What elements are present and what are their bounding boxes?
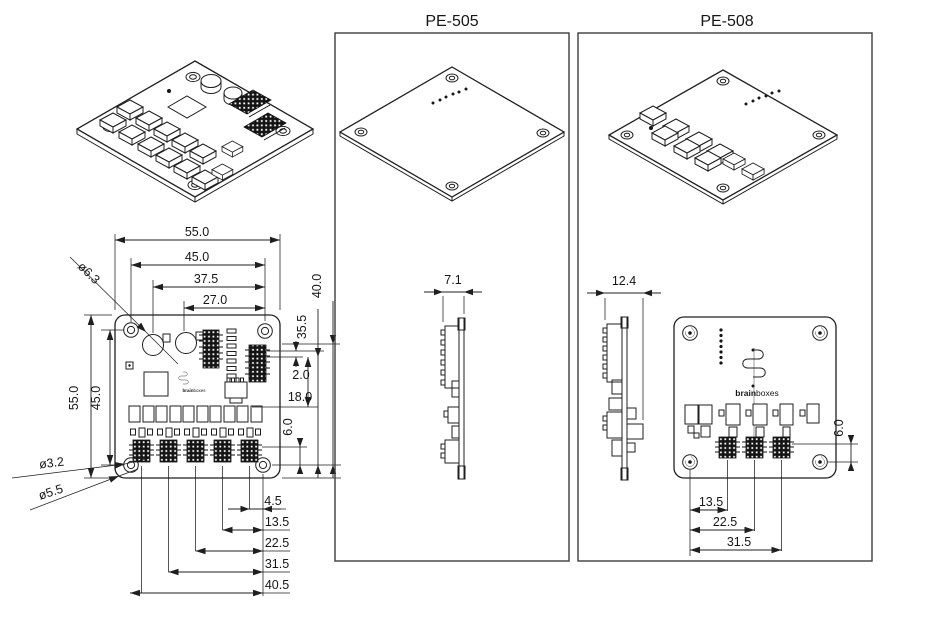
dim-label: 31.5 [265, 557, 289, 571]
terminal-connector [225, 378, 247, 403]
connector-group [210, 406, 235, 462]
dim-label: ø5.5 [37, 482, 65, 503]
connector-group [183, 406, 208, 462]
connector-row [685, 404, 819, 438]
dim-label: 6.0 [832, 419, 846, 436]
dim-bottom-chain: 4.5 13.5 22.5 31.5 40.5 [130, 466, 290, 596]
brand-logo: brainboxes [179, 372, 207, 393]
dim-label: 22.5 [713, 515, 737, 529]
panel-pe508: PE-508 [578, 13, 872, 561]
pin-header [769, 437, 794, 458]
mounting-hole [813, 455, 828, 470]
dim-label: 12.4 [612, 274, 636, 288]
dim-label: 2.0 [292, 368, 309, 382]
dim-label: 55.0 [185, 225, 209, 239]
mounting-hole [813, 326, 828, 341]
dim-label: 45.0 [89, 386, 103, 410]
dim-label: 6.0 [281, 418, 295, 435]
led-array [719, 328, 722, 364]
mounting-hole [124, 323, 139, 338]
dim-label: 7.1 [444, 273, 461, 287]
dim-bottom-chain: 13.5 22.5 31.5 [690, 460, 782, 556]
dim-thickness: 12.4 [587, 274, 661, 420]
pe508-iso-view [609, 70, 837, 204]
ic-chip [144, 372, 168, 396]
led [649, 126, 653, 130]
dim-label: 37.5 [194, 272, 218, 286]
pcb-outline [609, 70, 837, 200]
mounting-hole [683, 326, 698, 341]
dim-label: 4.5 [264, 494, 281, 508]
dim-label: 40.0 [310, 274, 324, 298]
led-array [432, 88, 468, 105]
brand-text: brainboxes [182, 388, 206, 393]
dim-label: 18.0 [288, 390, 312, 404]
pin-header [715, 437, 740, 458]
dim-label: 55.0 [67, 386, 81, 410]
dim-label: 40.5 [265, 578, 289, 592]
ic-chip [168, 96, 206, 118]
pcb-edge [622, 317, 627, 480]
connector-cluster [100, 100, 243, 190]
pin-header [742, 437, 767, 458]
led [167, 89, 171, 93]
dim-thickness: 7.1 [424, 273, 482, 322]
connector-group [129, 406, 154, 462]
pcb-edge [459, 318, 464, 479]
connector-group [237, 406, 262, 462]
pin-header [199, 330, 223, 368]
mounting-hole [258, 324, 273, 339]
dim-width-chain: 55.0 45.0 37.5 27.0 [115, 225, 280, 333]
panel-title-pe508: PE-508 [700, 13, 753, 30]
pe505-side-view: 7.1 [424, 273, 482, 479]
iso-view-overview [77, 61, 313, 202]
pin-header [245, 345, 270, 382]
top-view: brainboxes 55.0 45.0 37.5 27.0 55.0 45.0 [12, 225, 341, 596]
connector-group [156, 406, 181, 462]
dim-label: ø6.3 [75, 259, 103, 286]
connector-cluster [640, 106, 764, 180]
dim-label: ø3.2 [38, 455, 65, 472]
dim-label: 27.0 [203, 293, 227, 307]
dim-label: 13.5 [699, 495, 723, 509]
dim-label: 45.0 [185, 250, 209, 264]
pe508-side-view: 12.4 [587, 274, 661, 480]
pe508-bottom-view: brainboxes 6.0 13.5 22.5 31.5 [674, 317, 858, 556]
panel-pe505: PE-505 7.1 [335, 13, 569, 561]
pcb-outline [340, 67, 564, 197]
panel-border [578, 33, 872, 561]
brand-text: brainboxes [735, 388, 778, 398]
panel-title-pe505: PE-505 [425, 13, 478, 30]
datasheet-page: brainboxes 55.0 45.0 37.5 27.0 55.0 45.0 [0, 0, 938, 617]
pe505-iso-view [340, 67, 564, 201]
dim-label: 22.5 [265, 536, 289, 550]
mounting-hole [683, 455, 698, 470]
panel-border [335, 33, 569, 561]
dim-hole-offset: 6.0 [792, 419, 858, 471]
dim-label: 13.5 [265, 515, 289, 529]
capacitor [143, 332, 204, 356]
drawing-canvas: brainboxes 55.0 45.0 37.5 27.0 55.0 45.0 [0, 0, 938, 617]
led-array [227, 329, 236, 378]
dim-label: 31.5 [727, 535, 751, 549]
dim-label: 35.5 [295, 315, 309, 339]
